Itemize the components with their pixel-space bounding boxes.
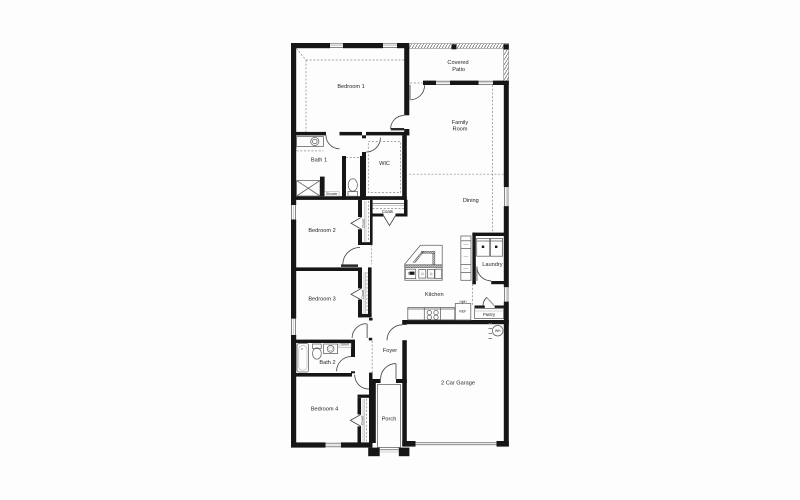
svg-text:Bedroom 3: Bedroom 3 xyxy=(308,296,335,302)
svg-text:Linen: Linen xyxy=(341,343,349,347)
svg-text:WIC: WIC xyxy=(379,161,390,167)
svg-text:Laundry: Laundry xyxy=(482,262,502,268)
svg-text:Patio: Patio xyxy=(452,67,465,73)
svg-text:Pantry: Pantry xyxy=(483,312,496,317)
svg-text:Bedroom 2: Bedroom 2 xyxy=(308,228,335,234)
svg-text:Closet: Closet xyxy=(361,416,365,425)
svg-text:REF: REF xyxy=(459,310,466,314)
svg-text:Bedroom 4: Bedroom 4 xyxy=(311,407,338,413)
svg-text:Foyer: Foyer xyxy=(383,348,397,354)
svg-text:Bath 2: Bath 2 xyxy=(319,360,335,366)
svg-text:Kitchen: Kitchen xyxy=(425,292,444,298)
svg-text:Closet: Closet xyxy=(361,290,365,299)
svg-text:2 Car Garage: 2 Car Garage xyxy=(441,380,475,386)
svg-text:Covered: Covered xyxy=(447,60,468,66)
svg-text:opt: opt xyxy=(461,300,466,304)
svg-text:Shower: Shower xyxy=(326,192,338,196)
svg-text:DW: DW xyxy=(408,271,414,275)
svg-text:Room: Room xyxy=(453,127,468,133)
svg-text:Bedroom 1: Bedroom 1 xyxy=(337,84,364,90)
svg-text:Porch: Porch xyxy=(382,417,397,423)
svg-text:Closet: Closet xyxy=(362,219,366,228)
svg-text:Family: Family xyxy=(452,120,469,126)
svg-text:Bath 1: Bath 1 xyxy=(311,157,327,163)
svg-text:Coats: Coats xyxy=(382,209,393,214)
svg-text:Dining: Dining xyxy=(463,198,479,204)
svg-text:WH: WH xyxy=(495,329,501,333)
